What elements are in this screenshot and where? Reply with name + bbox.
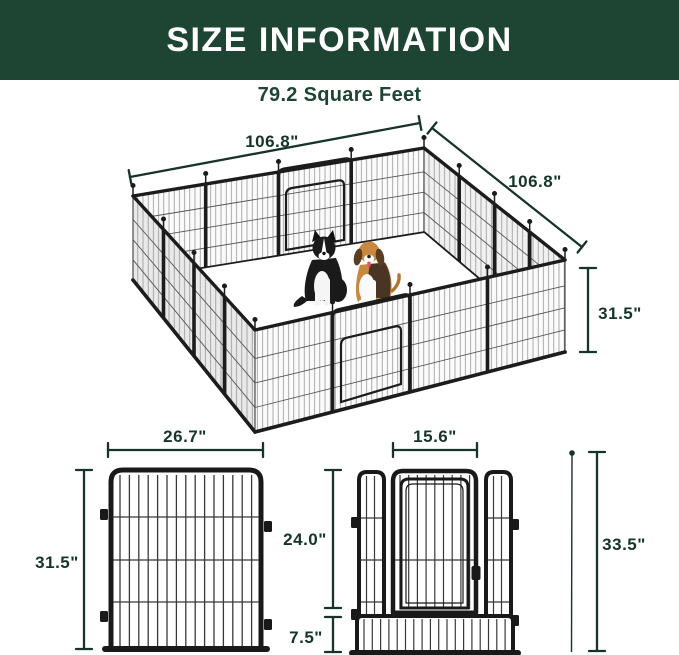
regular-panel-width-label: 26.7" [163,427,207,446]
regular-panel-height-label: 31.5" [35,553,79,572]
panel-height-label: 31.5" [598,304,642,323]
bottom-section-label: 7.5" [289,628,323,647]
door-height-dimension [325,470,341,652]
side-width-label: 106.8" [508,172,562,191]
door-panel-drawing [351,471,519,653]
regular-panel-drawing [100,470,272,649]
panel-dimension-diagrams: 26.7" 31.5" [0,425,679,655]
size-information-page: SIZE INFORMATION 79.2 Square Feet [0,0,679,655]
playpen-isometric-diagram: 106.8" 106.8" 31.5" [0,100,679,445]
header-banner: SIZE INFORMATION [0,0,679,80]
gate-latch [472,566,481,580]
top-width-label: 106.8" [245,132,299,151]
total-height-label: 33.5" [602,535,646,554]
door-height-label: 24.0" [283,530,327,549]
panel-height-dimension [580,268,596,352]
page-title: SIZE INFORMATION [166,21,512,60]
ground-stake-icon [569,450,575,652]
door-width-label: 15.6" [413,427,457,446]
